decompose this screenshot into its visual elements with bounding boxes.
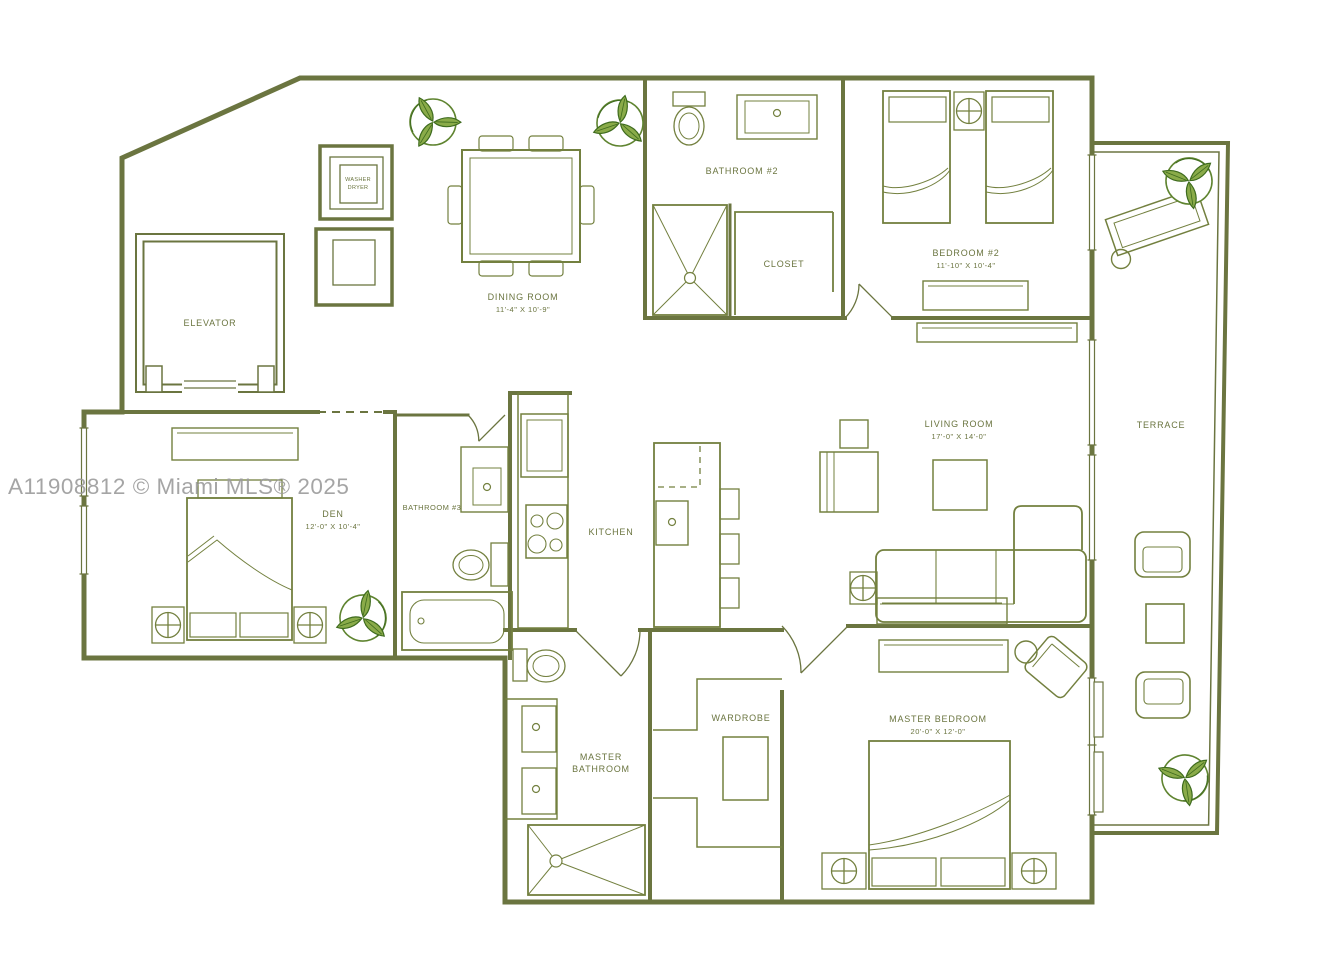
chaise <box>1014 506 1082 604</box>
master-suite-door <box>782 626 848 673</box>
lamp-icon <box>851 576 876 601</box>
door-arcs <box>468 284 893 676</box>
lamp-icon <box>156 613 181 638</box>
terrace-railing-inner <box>1092 152 1219 825</box>
room-dims-dining: 11'-4" X 10'-9" <box>496 305 550 314</box>
room-label-terrace: TERRACE <box>1137 420 1186 430</box>
mls-watermark: A11908812 © Miami MLS® 2025 <box>8 474 349 499</box>
pillow <box>941 858 1005 886</box>
stool <box>720 578 739 608</box>
tv-console <box>877 598 1007 624</box>
sofa <box>876 550 1086 622</box>
bathroom3-fixtures <box>402 447 512 650</box>
room-label-master-bath1: MASTER <box>580 752 622 762</box>
lamp-icon <box>1022 859 1047 884</box>
upper-cabinet-dashed <box>658 443 700 487</box>
stool <box>720 534 739 564</box>
toilet-bowl <box>453 550 489 580</box>
shower-drain <box>550 855 562 867</box>
plant-icon <box>410 95 461 147</box>
room-label-living: LIVING ROOM <box>925 419 994 429</box>
master-bath-door <box>575 630 640 676</box>
faucet <box>669 519 676 526</box>
room-dims-den: 12'-0" X 10'-4" <box>306 522 361 531</box>
end-table <box>840 420 868 448</box>
wardrobe-shelving <box>653 679 782 847</box>
shower-drain <box>685 273 696 284</box>
room-label-dryer: DRYER <box>348 185 369 191</box>
faucet <box>774 110 781 117</box>
faucet <box>484 484 491 491</box>
room-label-washer: WASHER <box>345 177 371 183</box>
toilet-tank <box>491 543 508 586</box>
small-round-table <box>1112 250 1131 269</box>
elevator-shaft <box>136 234 284 396</box>
fridge <box>521 414 568 477</box>
room-label-bedroom2: BEDROOM #2 <box>932 248 999 258</box>
pillow <box>190 613 236 637</box>
toilet-tank <box>673 92 705 106</box>
wardrobe-island <box>723 737 768 800</box>
dining-table-set <box>448 136 594 276</box>
lamp-icon <box>298 613 323 638</box>
room-label-wardrobe: WARDROBE <box>711 713 770 723</box>
room-dims-master-bedroom: 20'-0" X 12'-0" <box>911 727 966 736</box>
room-label-bathroom2: BATHROOM #2 <box>706 166 779 176</box>
pillow <box>872 858 936 886</box>
plant-icon <box>328 586 394 652</box>
master-bedroom-furniture <box>822 634 1089 889</box>
floorplan-canvas: ELEVATOR WASHER DRYER DINING ROOM 11'-4"… <box>0 0 1333 970</box>
twin-bed <box>883 91 950 223</box>
pillow <box>889 97 946 122</box>
lamp-icon <box>957 99 982 124</box>
vanity-counter <box>505 699 557 819</box>
stove <box>526 505 567 558</box>
kitchen-fixtures <box>518 393 739 628</box>
toilet-tank <box>513 649 527 681</box>
room-dims-living: 17'-0" X 14'-0" <box>932 432 987 441</box>
bedroom2-door <box>845 284 893 318</box>
island <box>654 443 720 627</box>
twin-bed <box>986 91 1053 223</box>
room-label-dining: DINING ROOM <box>488 292 559 302</box>
plant-icon <box>1149 745 1215 811</box>
sink <box>656 501 688 545</box>
lamp-icon <box>832 859 857 884</box>
room-label-kitchen: KITCHEN <box>588 527 633 537</box>
dresser <box>923 281 1028 310</box>
shower <box>653 205 727 315</box>
stool <box>720 489 739 519</box>
round-table <box>1015 641 1037 663</box>
shower <box>528 825 645 895</box>
bathroom3-door <box>468 415 505 441</box>
room-label-bathroom3: BATHROOM #3 <box>403 503 462 512</box>
den-furniture <box>152 428 326 643</box>
room-label-closet: CLOSET <box>764 259 805 269</box>
terrace-side-table <box>1146 604 1184 643</box>
shelf <box>917 323 1077 342</box>
coffee-table <box>933 460 987 510</box>
terrace-outer-wall <box>1092 143 1228 833</box>
pillow <box>240 613 288 637</box>
pillow <box>992 97 1049 122</box>
bathroom2-fixtures <box>653 92 833 315</box>
laundry-closet <box>316 146 392 305</box>
room-label-master-bedroom: MASTER BEDROOM <box>889 714 987 724</box>
room-dims-bedroom2: 11'-10" X 10'-4" <box>937 261 996 270</box>
armchair <box>820 452 878 512</box>
plant-icon <box>586 88 659 161</box>
room-label-master-bath2: BATHROOM <box>572 764 630 774</box>
terrace-furniture <box>1105 188 1208 718</box>
room-label-elevator: ELEVATOR <box>184 318 237 328</box>
room-label-den: DEN <box>322 509 343 519</box>
